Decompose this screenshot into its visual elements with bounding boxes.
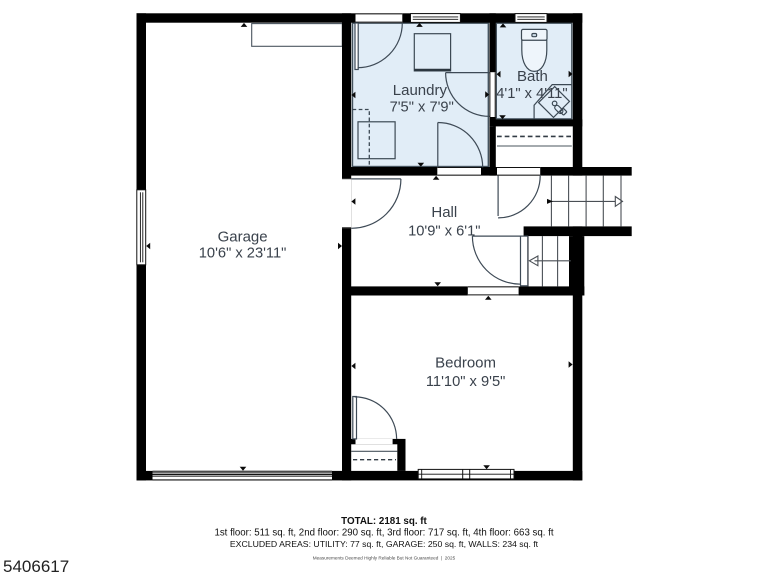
svg-text:10'9" x 6'1": 10'9" x 6'1" (408, 223, 480, 239)
svg-text:10'6" x 23'11": 10'6" x 23'11" (199, 246, 287, 262)
svg-text:Measurements Deemed Highly Rel: Measurements Deemed Highly Reliable But … (313, 556, 456, 561)
svg-text:5406617: 5406617 (3, 557, 69, 576)
svg-text:Garage: Garage (218, 228, 268, 245)
svg-text:TOTAL: 2181 sq. ft: TOTAL: 2181 sq. ft (341, 516, 427, 527)
svg-text:Bath: Bath (517, 68, 548, 85)
svg-text:7'5" x 7'9": 7'5" x 7'9" (390, 99, 454, 115)
svg-text:1st floor: 511 sq. ft, 2nd flo: 1st floor: 511 sq. ft, 2nd floor: 290 sq… (214, 528, 553, 539)
svg-text:4'1" x 4'11": 4'1" x 4'11" (496, 86, 567, 102)
svg-text:Laundry: Laundry (393, 82, 448, 99)
svg-text:11'10" x 9'5": 11'10" x 9'5" (426, 374, 505, 390)
svg-text:Bedroom: Bedroom (435, 355, 496, 372)
svg-text:Hall: Hall (431, 204, 457, 221)
svg-text:EXCLUDED AREAS: UTILITY: 77 sq: EXCLUDED AREAS: UTILITY: 77 sq. ft, GARA… (230, 539, 539, 549)
